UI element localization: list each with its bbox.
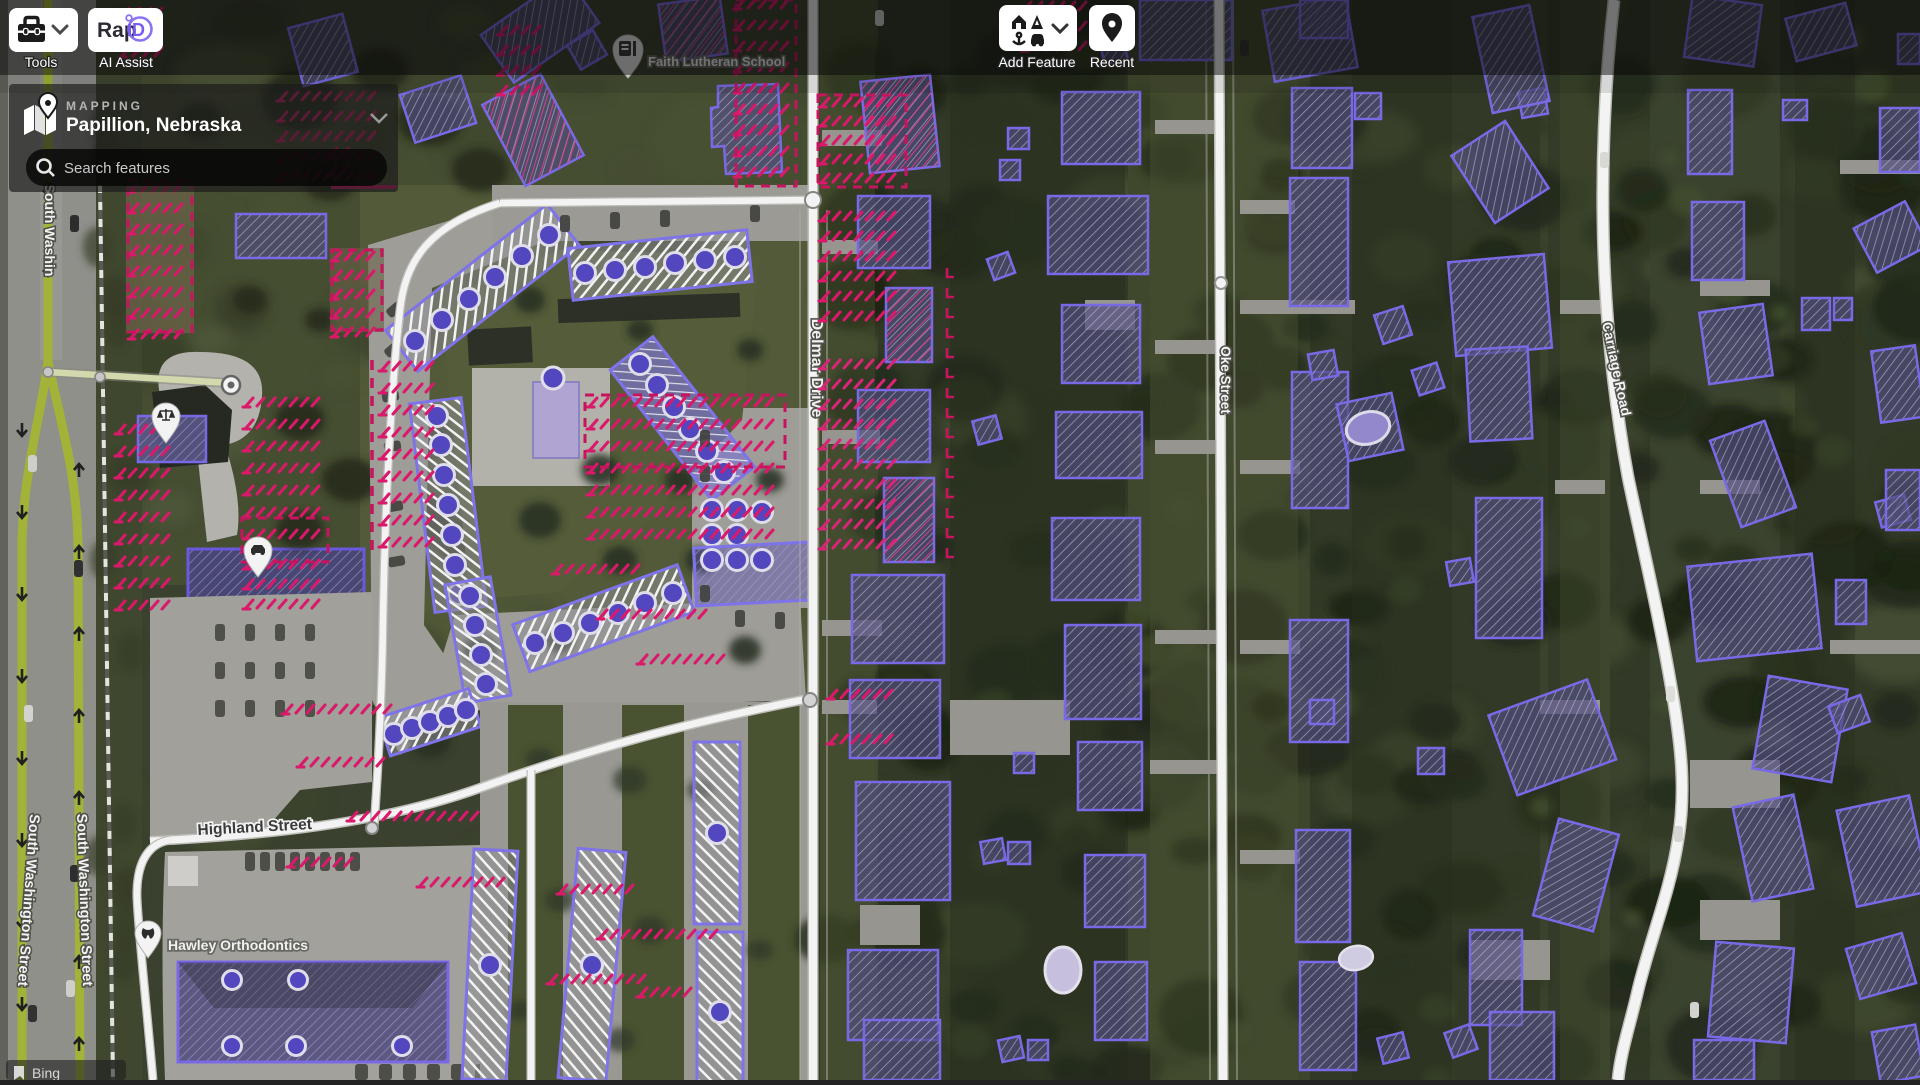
svg-text:Add Feature: Add Feature bbox=[998, 54, 1075, 70]
svg-text:Bing: Bing bbox=[32, 1065, 60, 1080]
svg-text:Tools: Tools bbox=[25, 54, 58, 70]
svg-text:MAPPING: MAPPING bbox=[66, 99, 143, 113]
svg-text:D: D bbox=[132, 20, 145, 40]
svg-text:Papillion, Nebraska: Papillion, Nebraska bbox=[66, 115, 242, 136]
svg-text:Recent: Recent bbox=[1090, 54, 1134, 70]
svg-text:Search features: Search features bbox=[64, 160, 170, 177]
svg-text:AI Assist: AI Assist bbox=[99, 54, 153, 70]
